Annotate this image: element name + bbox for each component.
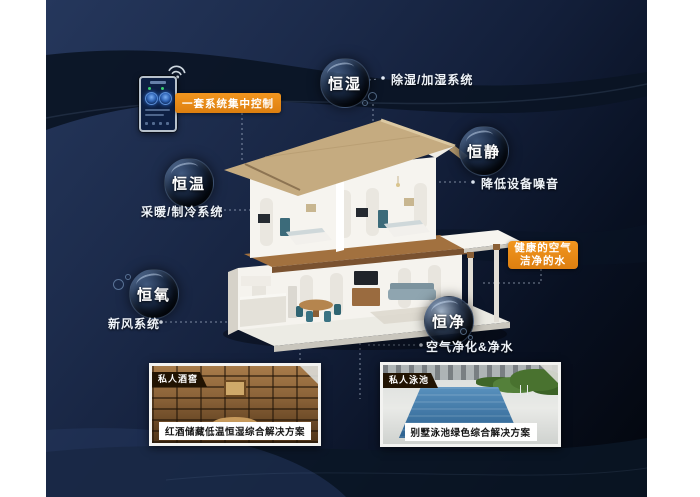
phone-status-dot: [161, 87, 164, 90]
bubble-label: 恒湿: [328, 73, 362, 94]
pool-ladder: [520, 385, 528, 395]
wine-cellar-panel: 私人酒窖 红酒储藏低温恒湿综合解决方案: [149, 363, 321, 446]
bubble-constant-quiet: 恒静: [459, 126, 509, 176]
bubble-label: 恒温: [172, 173, 206, 194]
poster-canvas: 一套系统集中控制 健康的空气 洁净的水 恒湿 恒静 恒温 恒氧 恒净 除湿/加湿…: [0, 0, 700, 497]
central-control-badge: 一套系统集中控制: [175, 93, 281, 113]
phone-menu-chip: [166, 122, 169, 125]
healthy-badge-line2: 洁净的水: [520, 255, 566, 268]
healthy-badge-line1: 健康的空气: [514, 242, 572, 255]
label-dehumidify-system: 除湿/加湿系统: [391, 71, 473, 88]
phone-dial-knob: [145, 92, 158, 105]
cellar-artwork: [224, 380, 246, 397]
phone-status-dot: [148, 87, 151, 90]
bubble-constant-temperature: 恒温: [164, 158, 214, 208]
wine-cellar-caption: 红酒储藏低温恒湿综合解决方案: [159, 422, 311, 440]
phone-menu-chip: [159, 122, 162, 125]
phone-menu-chip: [152, 122, 155, 125]
deco-bubble: [362, 100, 368, 106]
bubble-constant-oxygen: 恒氧: [129, 269, 179, 319]
label-fresh-air-system: 新风系统: [108, 315, 160, 332]
pool-tag: 私人泳池: [383, 373, 438, 388]
phone-text-bar: [145, 109, 170, 111]
smart-control-phone: [139, 76, 177, 132]
label-hvac-system: 采暖/制冷系统: [141, 203, 223, 220]
bubble-label: 恒氧: [137, 284, 171, 305]
pool-caption: 别墅泳池绿色综合解决方案: [404, 423, 536, 441]
deco-bubble: [125, 274, 131, 280]
phone-dial-knob: [159, 92, 172, 105]
deco-bubble: [113, 279, 124, 290]
phone-menu-chip: [145, 122, 148, 125]
deco-bubble: [460, 328, 467, 335]
label-noise-reduction: 降低设备噪音: [481, 175, 559, 192]
wine-cellar-tag: 私人酒窖: [152, 372, 207, 387]
bubble-label: 恒静: [467, 141, 501, 162]
label-purification: 空气净化&净水: [426, 338, 514, 355]
phone-titlebar: [150, 81, 166, 84]
healthy-air-water-badge: 健康的空气 洁净的水: [508, 241, 578, 269]
private-pool-panel: 私人泳池 别墅泳池绿色综合解决方案: [380, 362, 561, 447]
phone-text-bar: [145, 114, 164, 116]
deco-bubble: [368, 92, 377, 101]
